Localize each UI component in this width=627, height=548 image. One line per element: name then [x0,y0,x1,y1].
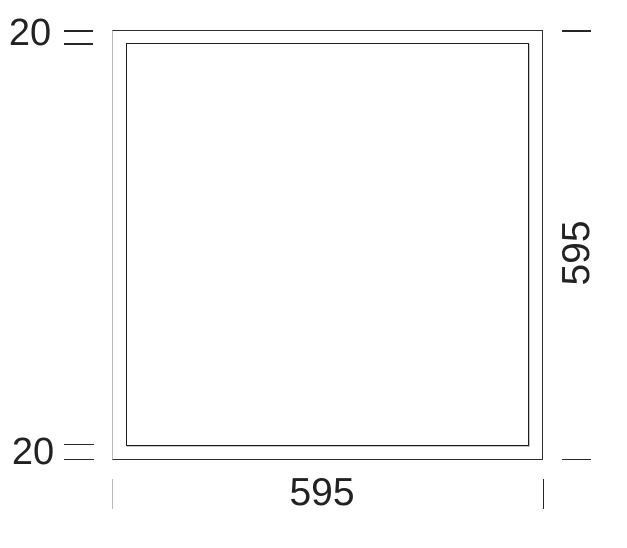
dim-tick-right-bottom [562,459,591,460]
dim-extension-top-outer [64,30,93,31]
panel-inner-outline [126,43,529,446]
dim-tick-right-top [562,30,591,31]
dim-tick-bottom-right [543,479,545,509]
dim-extension-top-inner [64,43,93,44]
dim-label-width-bottom: 595 [287,473,357,512]
drawing-canvas: 20 20 595 595 [0,0,627,548]
dim-extension-bottom-inner [64,444,94,445]
dim-label-height-right: 595 [556,213,596,293]
dim-label-border-top: 20 [5,14,55,52]
dim-label-border-bottom: 20 [8,433,58,471]
dim-extension-bottom-outer [64,459,94,460]
dim-tick-bottom-left [112,479,114,509]
